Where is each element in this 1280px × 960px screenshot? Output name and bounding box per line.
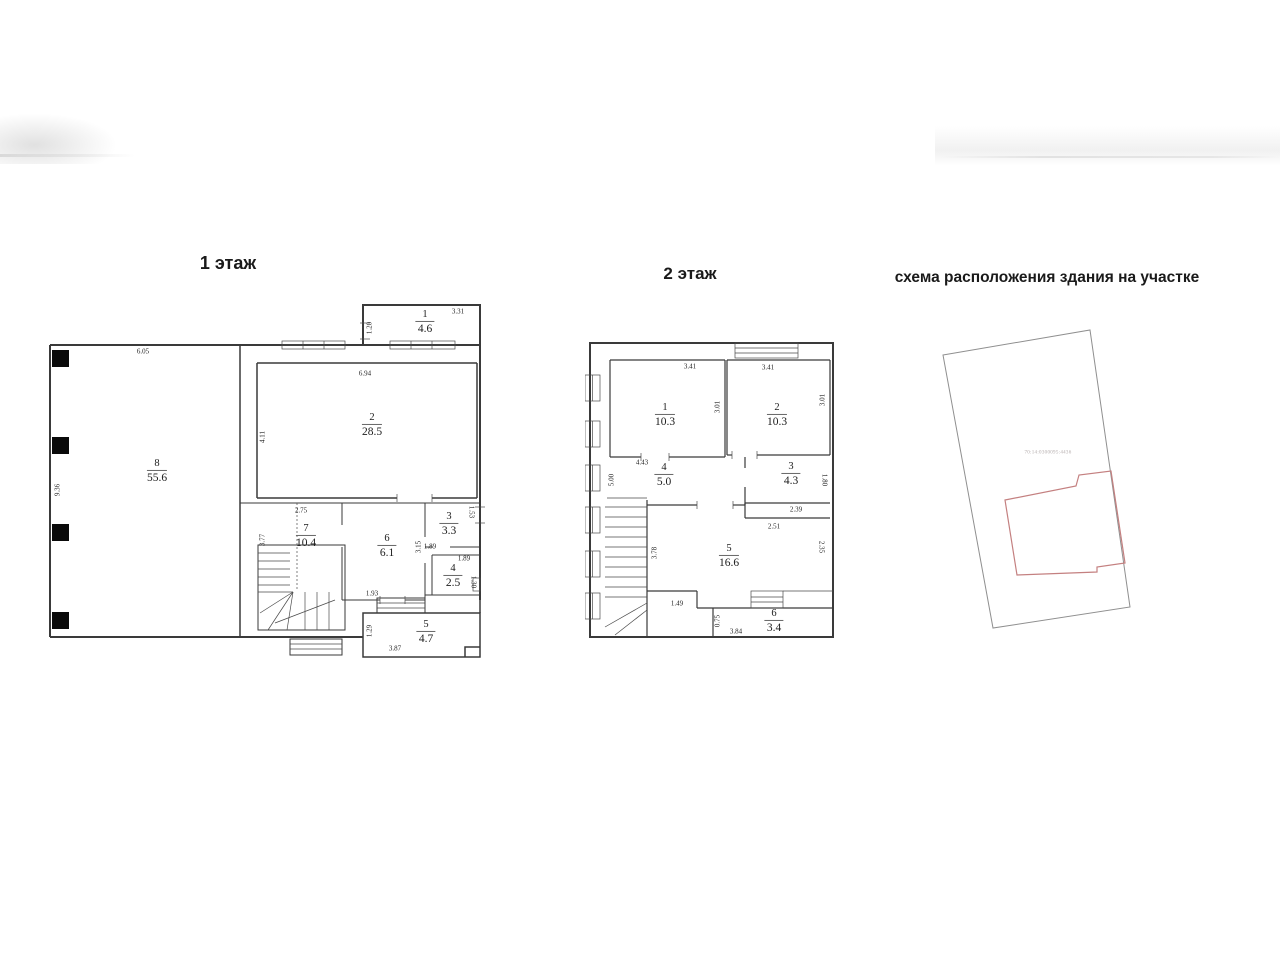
dim-label: 3.01: [715, 401, 722, 413]
room-number: 6: [377, 533, 396, 546]
room-label-f1-3: 3 3.3: [439, 511, 458, 537]
room-number: 3: [439, 511, 458, 524]
room-number: 3: [781, 461, 800, 474]
floor2-title: 2 этаж: [630, 264, 750, 284]
dim-label: 3.78: [652, 547, 659, 559]
dim-label: 9.36: [55, 484, 62, 496]
floor2-walls-svg: [585, 335, 840, 645]
room-number: 5: [719, 543, 738, 556]
room-label-f1-1: 1 4.6: [415, 309, 434, 335]
room-number: 5: [416, 619, 435, 632]
room-label-f1-2: 2 28.5: [362, 412, 382, 438]
room-label-f2-3: 3 4.3: [781, 461, 800, 487]
room-area: 6.1: [380, 546, 394, 559]
room-label-f1-4: 4 2.5: [443, 563, 462, 589]
room-area: 10.4: [296, 536, 316, 549]
room-number: 2: [767, 402, 786, 415]
scan-artifact-right: [935, 126, 1280, 166]
room-area: 3.3: [442, 524, 456, 537]
dim-label: 1.89: [424, 544, 436, 551]
cadastral-number: 70:14:0300095:4436: [1024, 451, 1071, 456]
dim-label: 3.41: [684, 364, 696, 371]
room-number: 2: [362, 412, 381, 425]
dim-label: 2.39: [790, 507, 802, 514]
scanned-floorplan-page: 1 этаж 2 этаж схема расположения здания …: [0, 0, 1280, 960]
dim-label: 3.01: [820, 394, 827, 406]
site-plan-svg: [930, 318, 1160, 638]
dim-label: 6.94: [359, 371, 371, 378]
dim-label: 3.31: [452, 309, 464, 316]
plot-boundary: [943, 330, 1130, 628]
room-number: 1: [655, 402, 674, 415]
dim-label: 1.29: [367, 625, 374, 637]
dim-label: 3.41: [762, 365, 774, 372]
floor1-plan: 6.05 9.36 3.31 1.20 6.94 4.11 2.75 3.77 …: [40, 295, 490, 670]
dim-label: 1.93: [366, 591, 378, 598]
room-label-f2-6: 6 3.4: [764, 608, 783, 634]
room-number: 6: [764, 608, 783, 621]
room-number: 1: [415, 309, 434, 322]
dim-label: 5.00: [609, 474, 616, 486]
dim-label: 6.05: [137, 349, 149, 356]
scan-artifact-left: [0, 114, 115, 164]
room-area: 3.4: [767, 621, 781, 634]
floor2-plan: 3.41 3.01 3.41 3.01 4.43 5.00 1.80 2.39 …: [585, 335, 840, 645]
room-area: 10.3: [655, 415, 675, 428]
room-number: 4: [654, 462, 673, 475]
room-area: 4.7: [419, 632, 433, 645]
dim-label: 2.51: [768, 524, 780, 531]
room-number: 8: [147, 458, 166, 471]
site-plan: 70:14:0300095:4436: [930, 318, 1160, 638]
dim-label: 1.49: [671, 601, 683, 608]
room-label-f2-2: 2 10.3: [767, 402, 787, 428]
dim-label: 3.15: [416, 541, 423, 553]
dim-label: 1.30: [470, 576, 477, 588]
dim-label: 3.77: [260, 534, 267, 546]
room-area: 28.5: [362, 425, 382, 438]
room-label-f1-6: 6 6.1: [377, 533, 396, 559]
dim-label: 2.75: [295, 508, 307, 515]
room-number: 4: [443, 563, 462, 576]
room-label-f2-5: 5 16.6: [719, 543, 739, 569]
room-label-f2-1: 1 10.3: [655, 402, 675, 428]
dim-label: 0.75: [715, 615, 722, 627]
dim-label: 1.80: [821, 474, 828, 486]
dim-label: 4.43: [636, 460, 648, 467]
dim-label: 1.89: [458, 556, 470, 563]
room-number: 7: [296, 523, 315, 536]
room-label-f1-5: 5 4.7: [416, 619, 435, 645]
room-area: 4.6: [418, 322, 432, 335]
room-label-f1-7: 7 10.4: [296, 523, 316, 549]
dim-label: 1.53: [468, 506, 475, 518]
dim-label: 2.35: [818, 541, 825, 553]
floor1-walls-svg: [40, 295, 490, 670]
room-label-f2-4: 4 5.0: [654, 462, 673, 488]
room-area: 16.6: [719, 556, 739, 569]
room-area: 5.0: [657, 475, 671, 488]
dim-label: 3.87: [389, 646, 401, 653]
room-area: 4.3: [784, 474, 798, 487]
floor1-title: 1 этаж: [163, 253, 293, 274]
dim-label: 4.11: [260, 431, 267, 443]
dim-label: 3.84: [730, 629, 742, 636]
room-area: 10.3: [767, 415, 787, 428]
site-title: схема расположения здания на участке: [852, 269, 1242, 287]
room-area: 2.5: [446, 576, 460, 589]
scan-artifact-right-line: [940, 156, 1280, 158]
room-area: 55.6: [147, 471, 167, 484]
room-label-f1-8: 8 55.6: [147, 458, 167, 484]
scan-artifact-left-line: [0, 154, 135, 157]
dim-label: 1.20: [367, 322, 374, 334]
